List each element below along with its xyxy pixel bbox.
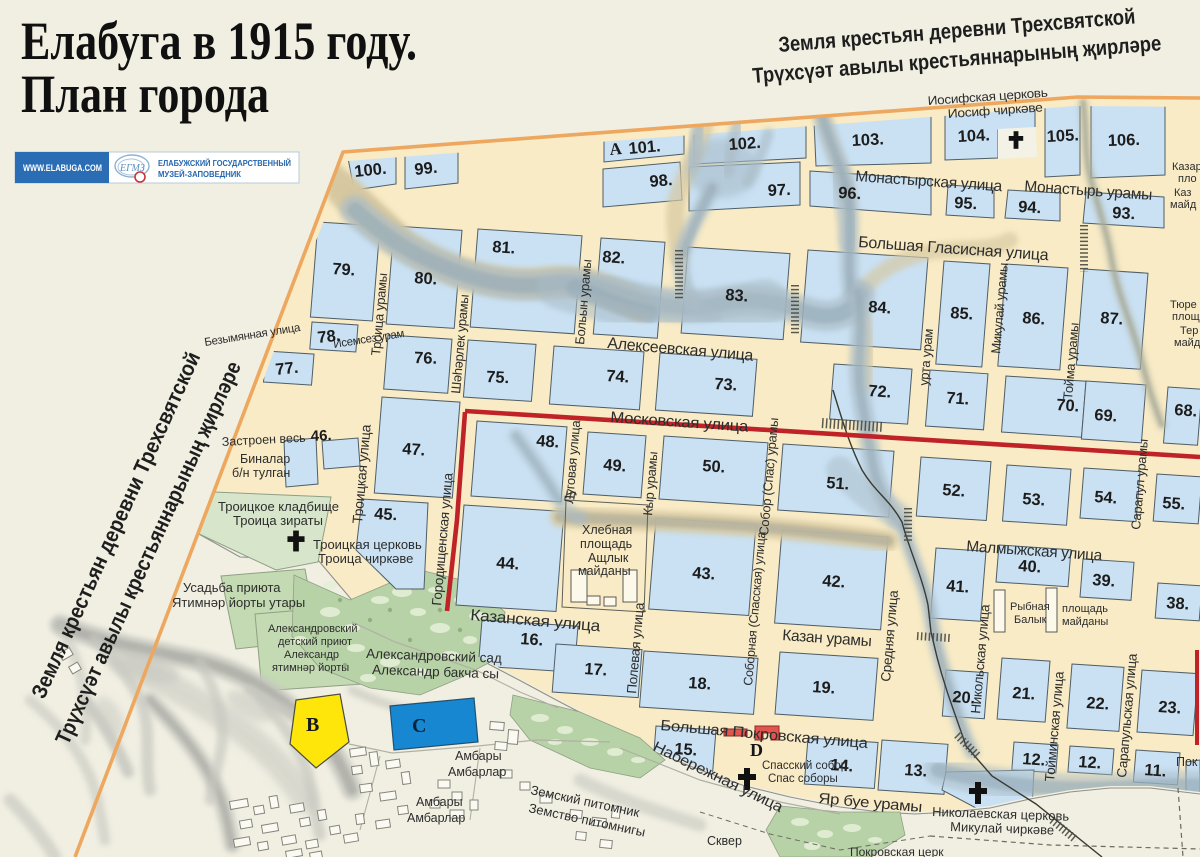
svg-text:Рыбная: Рыбная: [1010, 601, 1050, 613]
svg-text:Биналар: Биналар: [240, 452, 290, 466]
svg-text:ЕЛАБУЖСКИЙ ГОСУДАРСТВЕННЫЙ: ЕЛАБУЖСКИЙ ГОСУДАРСТВЕННЫЙ: [158, 157, 291, 168]
svg-text:площ: площ: [1172, 311, 1200, 323]
svg-text:Троицкое кладбище: Троицкое кладбище: [218, 499, 339, 514]
svg-text:Тюре: Тюре: [1170, 299, 1197, 311]
svg-text:83.: 83.: [725, 286, 749, 306]
svg-text:68.: 68.: [1174, 401, 1198, 421]
svg-text:42.: 42.: [822, 572, 846, 592]
svg-text:Елабуга в 1915 году.: Елабуга в 1915 году.: [21, 11, 417, 71]
svg-text:105.: 105.: [1046, 126, 1079, 146]
svg-text:11.: 11.: [1144, 761, 1167, 780]
svg-text:План города: План города: [21, 64, 269, 124]
svg-text:площадь: площадь: [580, 537, 632, 551]
svg-text:38.: 38.: [1166, 594, 1190, 614]
svg-text:Спас соборы: Спас соборы: [768, 773, 838, 785]
svg-text:майд: майд: [1174, 337, 1200, 349]
svg-text:майданы: майданы: [1062, 616, 1108, 628]
svg-text:Казар: Казар: [1172, 161, 1200, 173]
svg-text:В: В: [306, 714, 319, 736]
svg-text:Покровская церк: Покровская церк: [850, 845, 944, 857]
svg-text:101.: 101.: [628, 137, 662, 158]
svg-text:77.: 77.: [275, 359, 300, 379]
svg-text:84.: 84.: [868, 298, 892, 318]
svg-text:ятимнәр йорты: ятимнәр йорты: [272, 662, 349, 674]
svg-text:С: С: [412, 715, 426, 737]
svg-text:17.: 17.: [584, 660, 608, 680]
svg-text:54.: 54.: [1094, 488, 1118, 508]
svg-text:75.: 75.: [486, 368, 510, 387]
svg-text:86.: 86.: [1022, 309, 1046, 329]
svg-text:12.: 12.: [1022, 750, 1046, 770]
svg-text:46.: 46.: [310, 427, 332, 445]
svg-text:96.: 96.: [838, 184, 862, 203]
svg-text:51.: 51.: [826, 474, 850, 494]
svg-text:52.: 52.: [942, 481, 966, 501]
svg-text:Хлебная: Хлебная: [582, 523, 632, 537]
svg-text:12.: 12.: [1078, 753, 1102, 773]
svg-text:87.: 87.: [1100, 309, 1124, 329]
svg-text:100.: 100.: [354, 160, 388, 181]
svg-text:МУЗЕЙ-ЗАПОВЕДНИК: МУЗЕЙ-ЗАПОВЕДНИК: [158, 168, 242, 179]
svg-text:93.: 93.: [1112, 204, 1136, 223]
svg-text:79.: 79.: [332, 260, 356, 280]
svg-text:47.: 47.: [402, 440, 426, 460]
svg-text:95.: 95.: [954, 194, 978, 213]
svg-text:97.: 97.: [767, 181, 791, 200]
svg-text:48.: 48.: [536, 432, 560, 452]
svg-text:пло: пло: [1178, 173, 1197, 185]
svg-text:106.: 106.: [1108, 131, 1141, 150]
svg-text:Ятимнәр йорты утары: Ятимнәр йорты утары: [172, 595, 305, 610]
svg-text:69.: 69.: [1094, 406, 1118, 426]
svg-text:43.: 43.: [692, 564, 716, 584]
svg-text:D: D: [750, 740, 763, 760]
svg-text:23.: 23.: [1158, 698, 1182, 718]
svg-text:А: А: [609, 139, 624, 159]
svg-text:39.: 39.: [1092, 571, 1116, 591]
svg-text:детский приют: детский приют: [278, 636, 352, 648]
svg-text:74.: 74.: [606, 367, 630, 387]
svg-text:22.: 22.: [1086, 694, 1110, 714]
svg-text:44.: 44.: [496, 554, 520, 574]
svg-text:73.: 73.: [714, 375, 738, 395]
svg-text:Тер: Тер: [1180, 325, 1198, 337]
svg-text:Александр: Александр: [284, 649, 339, 661]
svg-text:82.: 82.: [602, 248, 626, 268]
svg-text:45.: 45.: [374, 505, 398, 524]
svg-text:72.: 72.: [868, 382, 892, 402]
svg-text:50.: 50.: [702, 457, 726, 477]
svg-text:Усадьба приюта: Усадьба приюта: [183, 580, 281, 595]
svg-text:площадь: площадь: [1062, 603, 1108, 615]
svg-text:Троицкая церковь: Троицкая церковь: [313, 537, 422, 552]
svg-text:21.: 21.: [1012, 684, 1036, 704]
svg-text:55.: 55.: [1162, 494, 1186, 514]
svg-text:Ащлык: Ащлык: [588, 551, 629, 565]
svg-text:85.: 85.: [950, 304, 974, 324]
svg-text:майданы: майданы: [578, 564, 631, 578]
svg-text:Амбары: Амбары: [455, 749, 502, 763]
svg-text:Амбарлар: Амбарлар: [448, 765, 506, 779]
svg-text:104.: 104.: [957, 126, 990, 146]
svg-text:Троица зираты: Троица зираты: [233, 513, 323, 528]
svg-text:53.: 53.: [1022, 490, 1046, 510]
svg-text:102.: 102.: [728, 134, 761, 154]
svg-text:Пок: Пок: [1176, 755, 1198, 769]
svg-text:Амбарлар: Амбарлар: [407, 811, 465, 825]
svg-text:49.: 49.: [603, 456, 627, 476]
svg-text:б/н тулган: б/н тулган: [232, 466, 290, 480]
svg-text:81.: 81.: [492, 238, 516, 258]
svg-text:19.: 19.: [812, 678, 836, 698]
svg-text:98.: 98.: [649, 171, 673, 191]
svg-text:Александровский: Александровский: [268, 623, 357, 635]
svg-text:94.: 94.: [1018, 198, 1042, 217]
svg-text:16.: 16.: [520, 630, 544, 650]
svg-text:76.: 76.: [414, 349, 438, 368]
svg-text:Каз: Каз: [1174, 187, 1191, 199]
svg-text:майд: майд: [1170, 199, 1197, 211]
svg-text:71.: 71.: [946, 389, 970, 409]
svg-text:80.: 80.: [414, 269, 438, 289]
svg-text:99.: 99.: [414, 159, 439, 179]
svg-text:103.: 103.: [851, 130, 884, 150]
svg-text:13.: 13.: [904, 761, 928, 781]
svg-text:Троица чиркәве: Троица чиркәве: [318, 551, 413, 566]
svg-text:18.: 18.: [688, 674, 712, 694]
svg-text:WWW.ELABUGA.COM: WWW.ELABUGA.COM: [23, 163, 102, 173]
svg-text:Амбары: Амбары: [416, 795, 463, 809]
svg-text:Спасский собор: Спасский собор: [762, 760, 847, 772]
svg-text:41.: 41.: [946, 577, 970, 597]
svg-text:Сквер: Сквер: [707, 834, 742, 848]
svg-text:Балык: Балык: [1014, 614, 1047, 626]
